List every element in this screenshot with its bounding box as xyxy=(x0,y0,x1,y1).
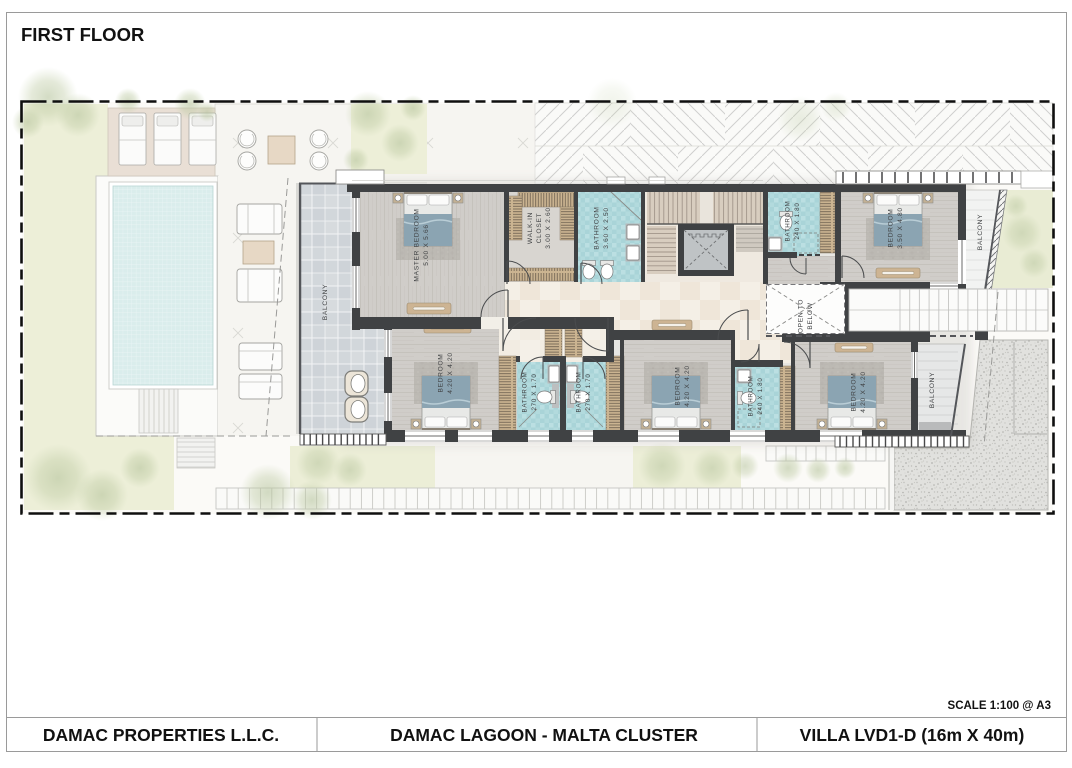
svg-text:SCALE 1:100 @ A3: SCALE 1:100 @ A3 xyxy=(948,700,1051,712)
svg-text:BALCONY: BALCONY xyxy=(977,214,984,250)
svg-text:DAMAC LAGOON - MALTA CLUSTER: DAMAC LAGOON - MALTA CLUSTER xyxy=(390,725,698,745)
svg-text:WALK-INCLOSET3.00 X 2.60: WALK-INCLOSET3.00 X 2.60 xyxy=(527,207,552,248)
svg-text:BALCONY: BALCONY xyxy=(322,284,329,320)
svg-text:VILLA LVD1-D (16m X 40m): VILLA LVD1-D (16m X 40m) xyxy=(800,725,1025,745)
svg-text:BALCONY: BALCONY xyxy=(929,372,936,408)
svg-text:FIRST FLOOR: FIRST FLOOR xyxy=(21,24,144,45)
svg-text:DAMAC PROPERTIES L.L.C.: DAMAC PROPERTIES L.L.C. xyxy=(43,725,279,745)
